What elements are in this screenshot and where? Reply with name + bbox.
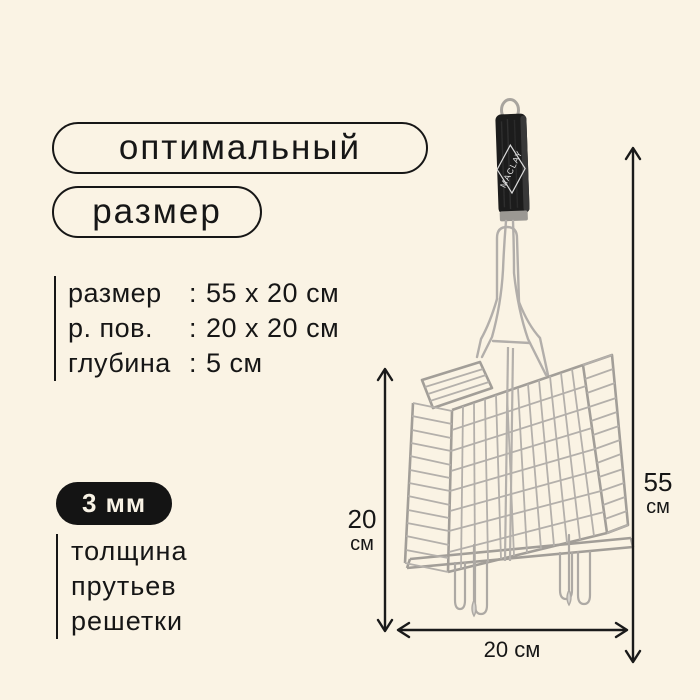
spec-label: размер — [68, 276, 180, 311]
thickness-badge-label: 3 мм — [82, 488, 146, 518]
spec-colon: : — [180, 346, 206, 381]
spec-label: р. пов. — [68, 311, 180, 346]
thickness-note-line1: толщина — [71, 534, 187, 569]
basket-frame — [405, 355, 633, 572]
specs-list: размер : 55 x 20 см р. пов. : 20 x 20 см… — [54, 276, 339, 381]
spec-value: 20 x 20 см — [206, 311, 339, 346]
spec-value: 5 см — [206, 346, 263, 381]
dim-label-right: 55 см — [636, 468, 680, 518]
grill-image: MACLAY — [360, 85, 700, 685]
dim-label-left: 20 см — [338, 505, 386, 555]
dim-arrow-bottom — [398, 623, 627, 637]
dimension-arrows — [378, 148, 640, 662]
title-badge-size-label: размер — [92, 192, 222, 232]
spec-label: глубина — [68, 346, 180, 381]
spec-row-depth: глубина : 5 см — [68, 346, 339, 381]
thickness-note-line3: решетки — [71, 604, 187, 639]
dim-left-value: 20 — [338, 505, 386, 533]
handle: MACLAY — [495, 113, 530, 221]
dim-arrow-right — [626, 148, 640, 662]
spec-row-surface: р. пов. : 20 x 20 см — [68, 311, 339, 346]
title-badge-size: размер — [52, 186, 262, 238]
dim-left-unit: см — [338, 533, 386, 555]
spec-value: 55 x 20 см — [206, 276, 339, 311]
spec-row-size: размер : 55 x 20 см — [68, 276, 339, 311]
title-badge-optimal-label: оптимальный — [119, 128, 361, 168]
spec-colon: : — [180, 311, 206, 346]
thickness-badge: 3 мм — [56, 482, 172, 525]
handle-ferrule — [500, 210, 528, 221]
dim-right-unit: см — [636, 496, 680, 518]
dim-bottom-value: 20 см — [484, 637, 541, 662]
dim-arrow-left — [378, 369, 392, 631]
dim-label-bottom: 20 см — [462, 637, 562, 663]
thickness-note: толщина прутьев решетки — [56, 534, 187, 639]
product-card: оптимальный размер размер : 55 x 20 см р… — [0, 0, 700, 700]
basket-mesh — [405, 347, 628, 572]
thickness-note-line2: прутьев — [71, 569, 187, 604]
dim-right-value: 55 — [636, 468, 680, 496]
spec-colon: : — [180, 276, 206, 311]
